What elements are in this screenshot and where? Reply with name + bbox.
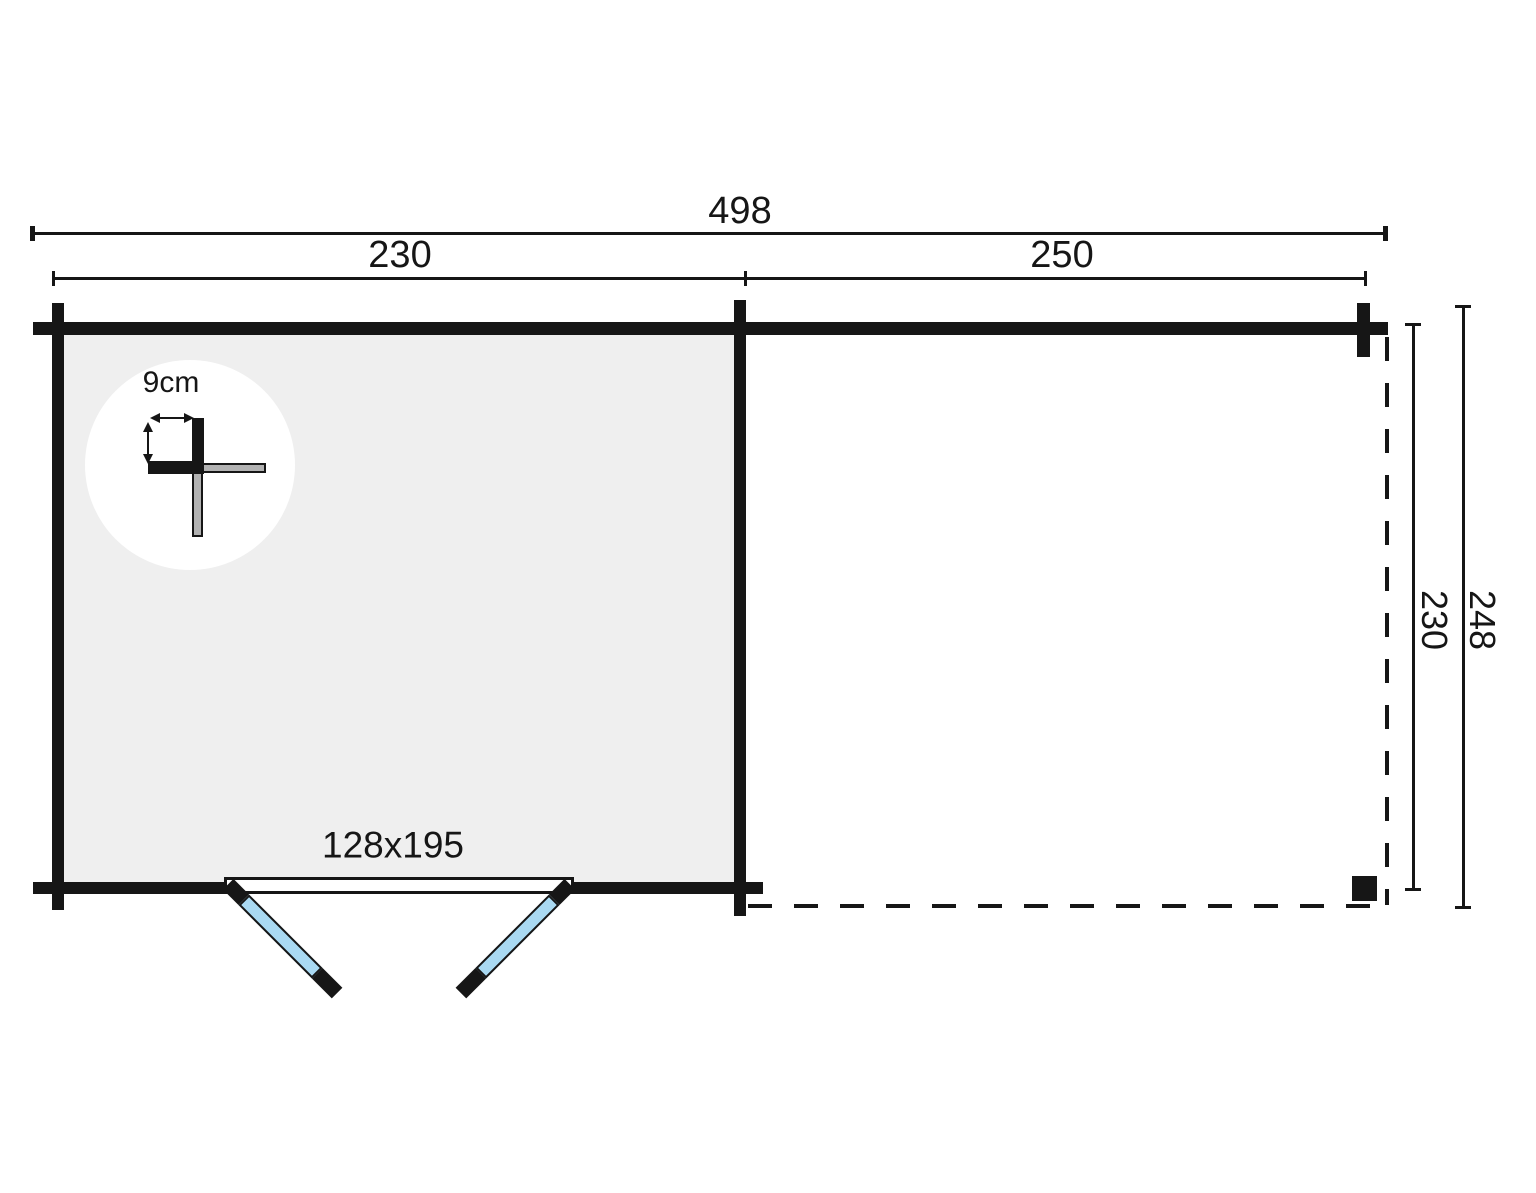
door-size-label: 128x195	[322, 827, 464, 864]
door-leaf-right	[456, 879, 576, 999]
canopy-width-tick-right	[1364, 271, 1367, 286]
canopy-depth-label: 230	[1416, 590, 1452, 650]
door-glass-panel	[475, 894, 559, 978]
total-width-label: 498	[708, 192, 771, 230]
canopy-width-dimension-line	[745, 277, 1366, 280]
wall-bottom-left-segment	[33, 882, 232, 894]
canopy-dashed-edge-right	[1385, 337, 1389, 905]
arrowhead-down-icon	[143, 454, 153, 464]
door-leaf-left	[223, 879, 343, 999]
cabin-width-label: 230	[368, 236, 431, 274]
detail-log-horizontal-gray	[202, 463, 266, 473]
canopy-post-bottom-right	[1352, 876, 1377, 901]
total-width-tick-right	[1383, 226, 1388, 241]
wall-bottom-right-segment	[566, 882, 763, 894]
arrowhead-up-icon	[143, 422, 153, 432]
canopy-width-label: 250	[1030, 236, 1093, 274]
door-glass-panel	[238, 894, 322, 978]
wall-thickness-label: 9cm	[143, 368, 200, 398]
wall-middle	[734, 300, 746, 916]
cabin-width-tick-left	[52, 271, 55, 286]
total-depth-tick-bottom	[1455, 906, 1471, 909]
thickness-arrow-horizontal	[150, 413, 194, 423]
floor-plan-canvas: 498 230 250 230 248 9cm	[0, 0, 1536, 1193]
total-width-dimension-line	[32, 232, 1388, 235]
total-depth-tick-top	[1455, 305, 1471, 308]
total-width-tick-left	[30, 226, 35, 241]
total-depth-label: 248	[1464, 590, 1500, 650]
canopy-depth-tick-bottom	[1405, 888, 1421, 891]
door-edge-cap	[312, 968, 342, 998]
arrowhead-right-icon	[184, 413, 194, 423]
arrow-shaft	[147, 429, 150, 457]
thickness-arrow-vertical	[143, 422, 153, 464]
canopy-post-top-right	[1357, 303, 1370, 357]
door-frame	[224, 877, 574, 894]
canopy-dashed-edge-bottom	[748, 904, 1390, 908]
cabin-width-dimension-line	[53, 277, 745, 280]
shared-tick-middle	[744, 271, 747, 286]
detail-log-vertical-gray	[192, 472, 203, 537]
canopy-depth-tick-top	[1405, 323, 1421, 326]
wall-top	[33, 322, 1388, 335]
wall-left	[52, 303, 64, 910]
arrow-shaft	[157, 417, 187, 420]
